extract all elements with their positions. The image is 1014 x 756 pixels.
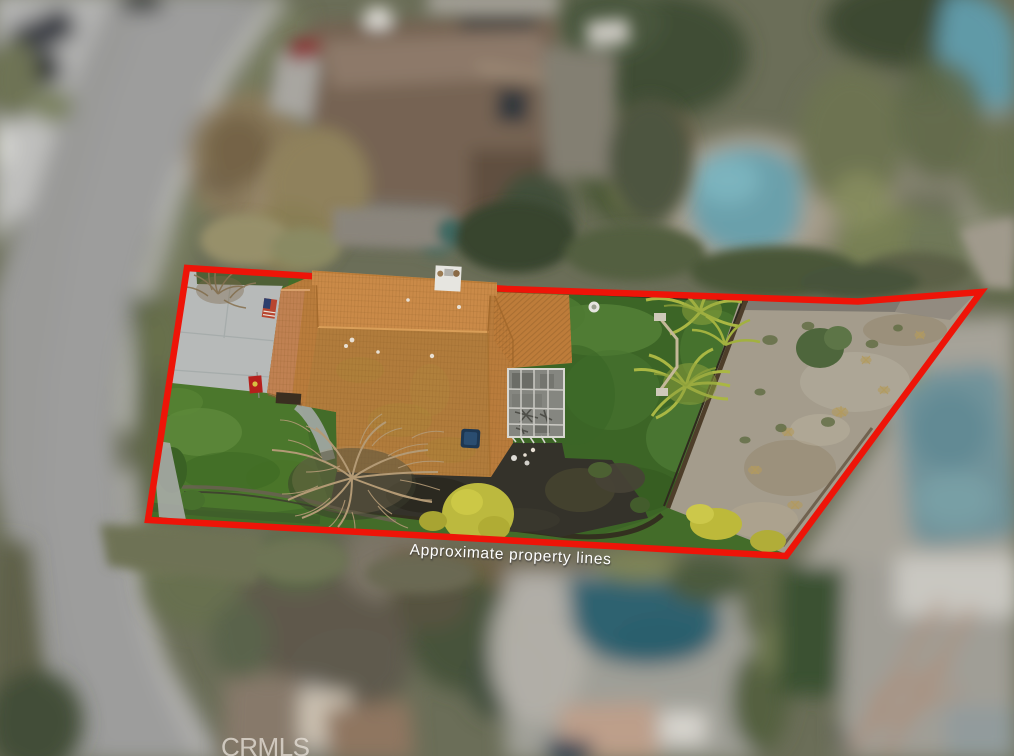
- svg-text:CRMLS: CRMLS: [221, 732, 310, 756]
